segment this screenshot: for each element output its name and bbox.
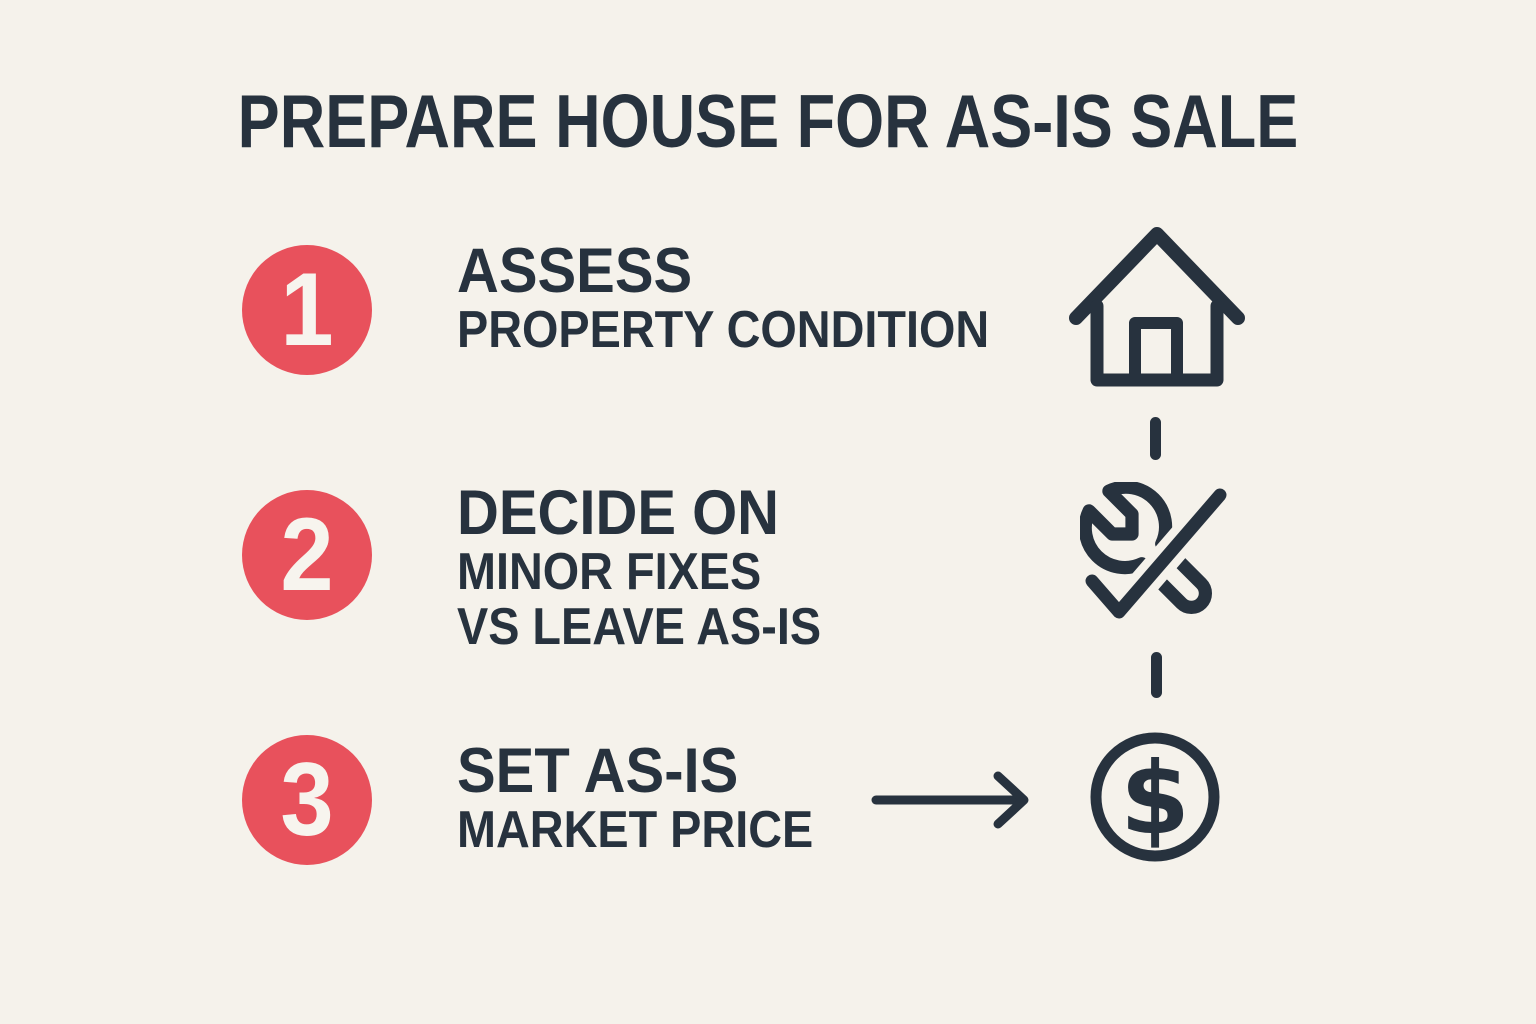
right-arrow-icon [870, 768, 1040, 832]
step-2-subline-2: VS LEAVE AS-IS [457, 600, 821, 655]
step-3-heading: SET AS-IS [457, 740, 738, 803]
dashed-connector [1151, 652, 1162, 698]
step-2-subline-1: MINOR FIXES [457, 545, 761, 600]
step-1-number: 1 [280, 258, 333, 362]
dollar-symbol: $ [1120, 740, 1190, 857]
tools-icon [1080, 482, 1230, 627]
step-1-text: ASSESS PROPERTY CONDITION [457, 240, 1048, 358]
page-title: PREPARE HOUSE FOR AS-IS SALE [123, 84, 1413, 159]
step-2-heading: DECIDE ON [457, 482, 779, 545]
step-3-number: 3 [280, 748, 333, 852]
step-3-subline: MARKET PRICE [457, 803, 813, 858]
house-icon [1066, 226, 1246, 388]
step-2-text: DECIDE ON MINOR FIXES VS LEAVE AS-IS [457, 482, 862, 655]
step-1-subline: PROPERTY CONDITION [457, 303, 989, 358]
step-3-number-badge: 3 [242, 735, 372, 865]
dashed-connector [1150, 417, 1161, 460]
step-2-number: 2 [280, 503, 333, 607]
step-2-number-badge: 2 [242, 490, 372, 620]
step-3-text: SET AS-IS MARKET PRICE [457, 740, 853, 858]
infographic-canvas: PREPARE HOUSE FOR AS-IS SALE 1 ASSESS PR… [0, 0, 1536, 1024]
step-1-number-badge: 1 [242, 245, 372, 375]
step-1-heading: ASSESS [457, 240, 692, 303]
dollar-circle-icon: $ [1085, 727, 1225, 867]
